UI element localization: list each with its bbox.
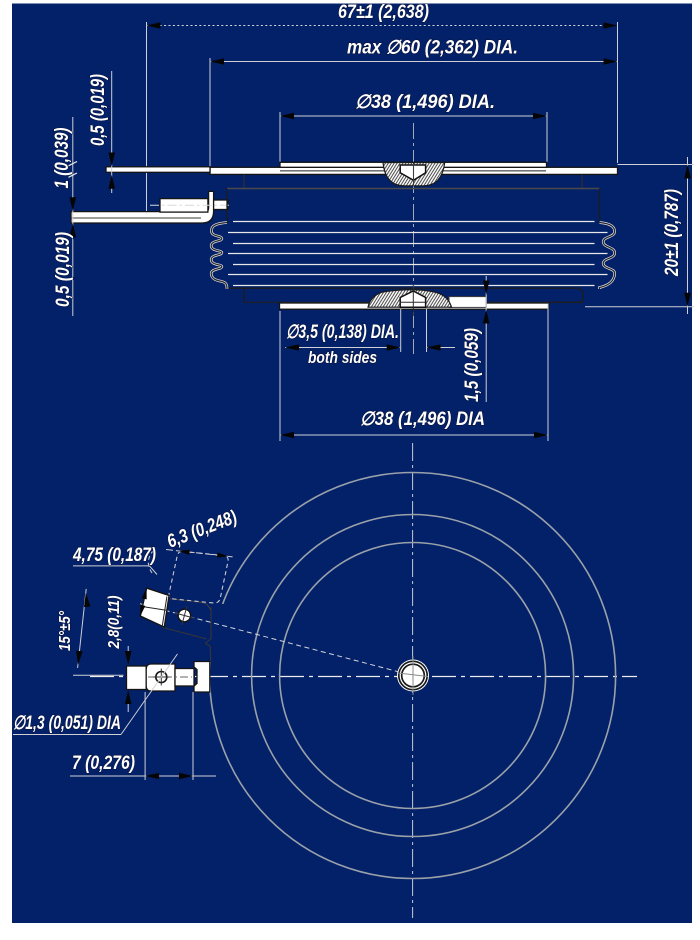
svg-text:0,5 (0,019): 0,5 (0,019) — [53, 232, 74, 307]
svg-text:1 (0,039): 1 (0,039) — [52, 128, 73, 189]
svg-text:∅3,5 (0,138) DIA.: ∅3,5 (0,138) DIA. — [286, 322, 399, 343]
svg-text:max ∅60 (2,362) DIA.: max ∅60 (2,362) DIA. — [347, 38, 518, 59]
svg-text:67±1 (2,638): 67±1 (2,638) — [338, 2, 429, 23]
svg-text:15°±5°: 15°±5° — [57, 611, 74, 651]
svg-text:∅1,3 (0,051) DIA: ∅1,3 (0,051) DIA — [13, 713, 121, 734]
svg-text:7 (0,276): 7 (0,276) — [72, 753, 135, 774]
svg-text:∅38 (1,496) DIA.: ∅38 (1,496) DIA. — [355, 92, 495, 113]
svg-text:20±1 (0,787): 20±1 (0,787) — [662, 189, 683, 277]
svg-text:1,5 (0,059): 1,5 (0,059) — [462, 328, 483, 402]
svg-text:4,75 (0,187): 4,75 (0,187) — [72, 545, 156, 566]
svg-text:2,8(0,11): 2,8(0,11) — [106, 596, 123, 650]
svg-text:∅38 (1,496) DIA: ∅38 (1,496) DIA — [360, 409, 485, 430]
svg-text:both sides: both sides — [308, 348, 377, 367]
svg-text:0,5 (0,019): 0,5 (0,019) — [88, 74, 109, 146]
